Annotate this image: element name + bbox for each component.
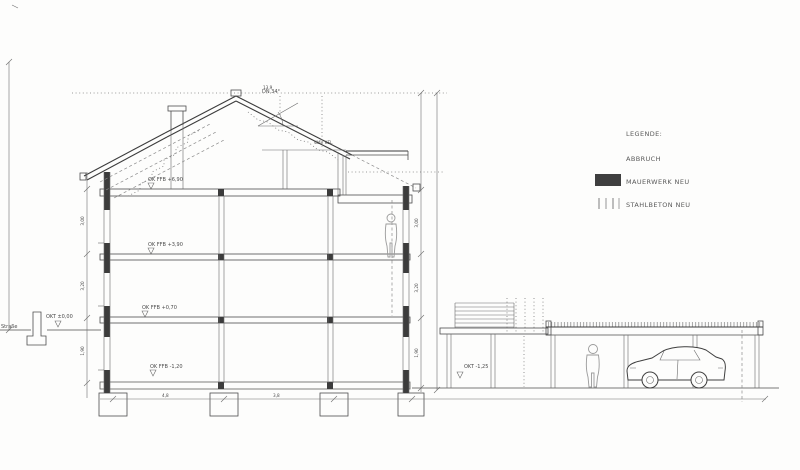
interior-walls bbox=[219, 196, 392, 383]
person-building-icon bbox=[385, 214, 396, 257]
carport-roof-hatch bbox=[548, 322, 762, 327]
dim-storey-upper-left: 3,00 bbox=[80, 216, 85, 226]
dim-storey-upper-right: 3,00 bbox=[414, 218, 419, 228]
roof-pitch-annotation: DN 34° bbox=[258, 89, 298, 126]
left-gutter bbox=[80, 173, 86, 180]
level-label-upper: OK FFB +3,90 bbox=[148, 242, 183, 248]
dim-storey-lower-right: 1,90 bbox=[414, 348, 419, 358]
legend-item-stahlbeton: STAHLBETON NEU bbox=[626, 201, 690, 209]
old-roof-abbruch-dashed bbox=[352, 155, 416, 188]
dormer-slab-hatched bbox=[338, 195, 412, 203]
level-label-basement: OK FFB -1,20 bbox=[150, 364, 183, 370]
dim-bay-right: 3,8 bbox=[273, 393, 280, 398]
street-level-marker bbox=[55, 321, 61, 327]
bottom-dim-chain: 4,8 3,8 bbox=[100, 393, 768, 402]
level-label-ground: OK FFB +0,70 bbox=[142, 305, 177, 311]
street-retaining-wall bbox=[27, 312, 46, 345]
right-exterior-wall bbox=[402, 186, 410, 393]
legend: LEGENDE: ABBRUCH MAUERWERK NEU STAHLBETO… bbox=[595, 130, 690, 209]
ridge-cap bbox=[231, 90, 241, 96]
carport-left-beam bbox=[440, 328, 548, 334]
level-label-attic: OK FFB +6,90 bbox=[148, 177, 183, 183]
right-gutter bbox=[413, 184, 420, 191]
legend-item-abbruch: ABBRUCH bbox=[626, 155, 661, 163]
dim-storey-lower-left: 1,90 bbox=[80, 346, 85, 356]
roof-dormer bbox=[338, 151, 445, 195]
insulation-zigzag: WAV KEL bbox=[248, 112, 338, 160]
left-dim-chain: 3,00 3,20 1,90 bbox=[80, 172, 90, 398]
level-labels: OK FFB +6,90 OK FFB +3,90 OK FFB +0,70 O… bbox=[142, 177, 183, 376]
car-icon bbox=[627, 347, 725, 388]
ridge-height-label: 13,9 bbox=[263, 85, 273, 90]
trellis-dotted bbox=[507, 298, 543, 387]
yard-level-label: OKT -1,25 bbox=[464, 364, 488, 370]
building-section: OK FFB +6,90 OK FFB +3,90 OK FFB +0,70 O… bbox=[98, 172, 424, 416]
dim-storey-mid-left: 3,20 bbox=[80, 281, 85, 291]
section-drawing: Straße OKT ±0,00 OKT -1,25 bbox=[0, 0, 800, 470]
legend-item-mauerwerk: MAUERWERK NEU bbox=[626, 178, 689, 186]
main-roof-slopes bbox=[80, 90, 420, 191]
legend-title: LEGENDE: bbox=[626, 130, 662, 138]
carport-left bbox=[440, 298, 548, 388]
floor-slabs bbox=[100, 189, 412, 389]
carport-right bbox=[546, 321, 763, 402]
slab-wall-nodes bbox=[218, 189, 409, 389]
left-exterior-wall bbox=[98, 172, 111, 393]
foundation-footings bbox=[99, 393, 424, 416]
stahlbeton-swatch bbox=[599, 198, 619, 209]
architectural-section-sheet: Straße OKT ±0,00 OKT -1,25 bbox=[0, 0, 800, 470]
street-level-label: OKT ±0,00 bbox=[46, 314, 73, 320]
mauerwerk-swatch bbox=[595, 174, 621, 186]
roof: WAV KEL DN 34° bbox=[80, 89, 445, 198]
dim-storey-mid-right: 3,20 bbox=[414, 283, 419, 293]
yard-level-marker bbox=[457, 372, 463, 378]
attic-note-label: WAV KEL bbox=[314, 140, 333, 145]
right-dim-chains: 3,00 3,20 1,90 bbox=[414, 90, 440, 393]
stair-louver-block bbox=[455, 303, 514, 328]
person-carport-icon bbox=[586, 345, 599, 388]
dim-bay-left: 4,8 bbox=[162, 393, 169, 398]
